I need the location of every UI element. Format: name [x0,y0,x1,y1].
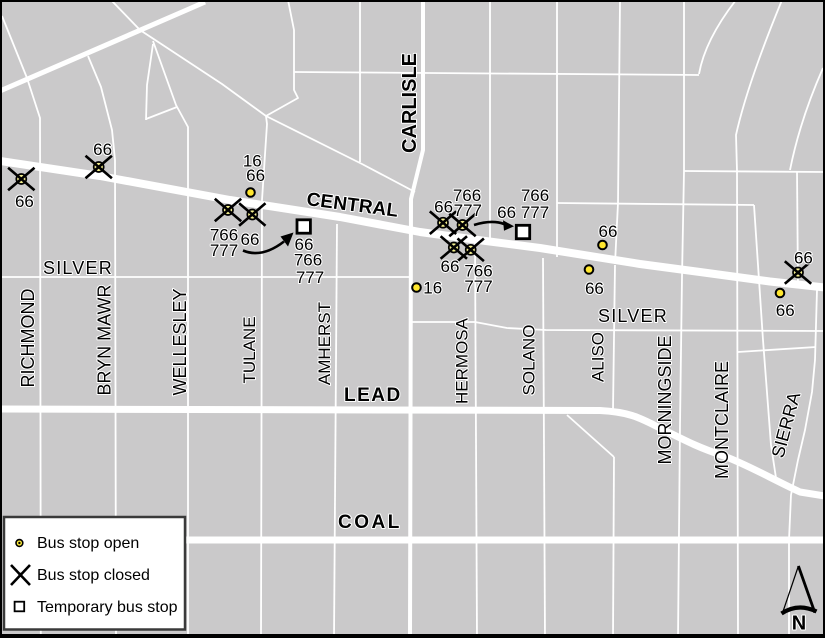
svg-text:777: 777 [454,201,482,220]
svg-text:66: 66 [599,222,618,241]
svg-text:N: N [792,613,806,635]
svg-text:66: 66 [776,301,795,320]
svg-text:777: 777 [521,203,549,222]
svg-text:TULANE: TULANE [240,316,259,383]
svg-text:66: 66 [241,230,260,249]
svg-text:16: 16 [423,279,442,298]
svg-text:CARLISLE: CARLISLE [399,53,421,153]
svg-text:66: 66 [585,279,604,298]
svg-text:Bus stop closed: Bus stop closed [37,567,150,584]
svg-text:LEAD: LEAD [344,385,402,406]
svg-text:AMHERST: AMHERST [315,302,334,385]
svg-text:ALISO: ALISO [589,332,608,382]
svg-text:MONTCLAIRE: MONTCLAIRE [712,361,732,479]
svg-text:WELLESLEY: WELLESLEY [170,288,190,395]
svg-text:66: 66 [93,140,112,159]
svg-text:COAL: COAL [338,512,402,533]
svg-text:SILVER: SILVER [43,258,113,278]
svg-text:66: 66 [794,249,813,268]
svg-text:66: 66 [15,192,34,211]
svg-text:MORNINGSIDE: MORNINGSIDE [655,335,675,464]
svg-text:SILVER: SILVER [598,306,668,326]
svg-text:SOLANO: SOLANO [520,325,539,396]
svg-text:66: 66 [434,198,453,217]
svg-text:66: 66 [497,203,516,222]
svg-text:RICHMOND: RICHMOND [18,289,38,388]
svg-text:777: 777 [464,277,492,296]
svg-text:Temporary bus stop: Temporary bus stop [37,599,178,616]
svg-text:Bus stop open: Bus stop open [37,535,139,552]
svg-text:HERMOSA: HERMOSA [453,317,472,404]
svg-text:777: 777 [210,241,238,260]
svg-text:BRYN MAWR: BRYN MAWR [95,284,115,395]
svg-text:66: 66 [441,257,460,276]
svg-text:777: 777 [296,268,324,287]
svg-text:766: 766 [294,251,322,270]
svg-text:66: 66 [246,166,265,185]
